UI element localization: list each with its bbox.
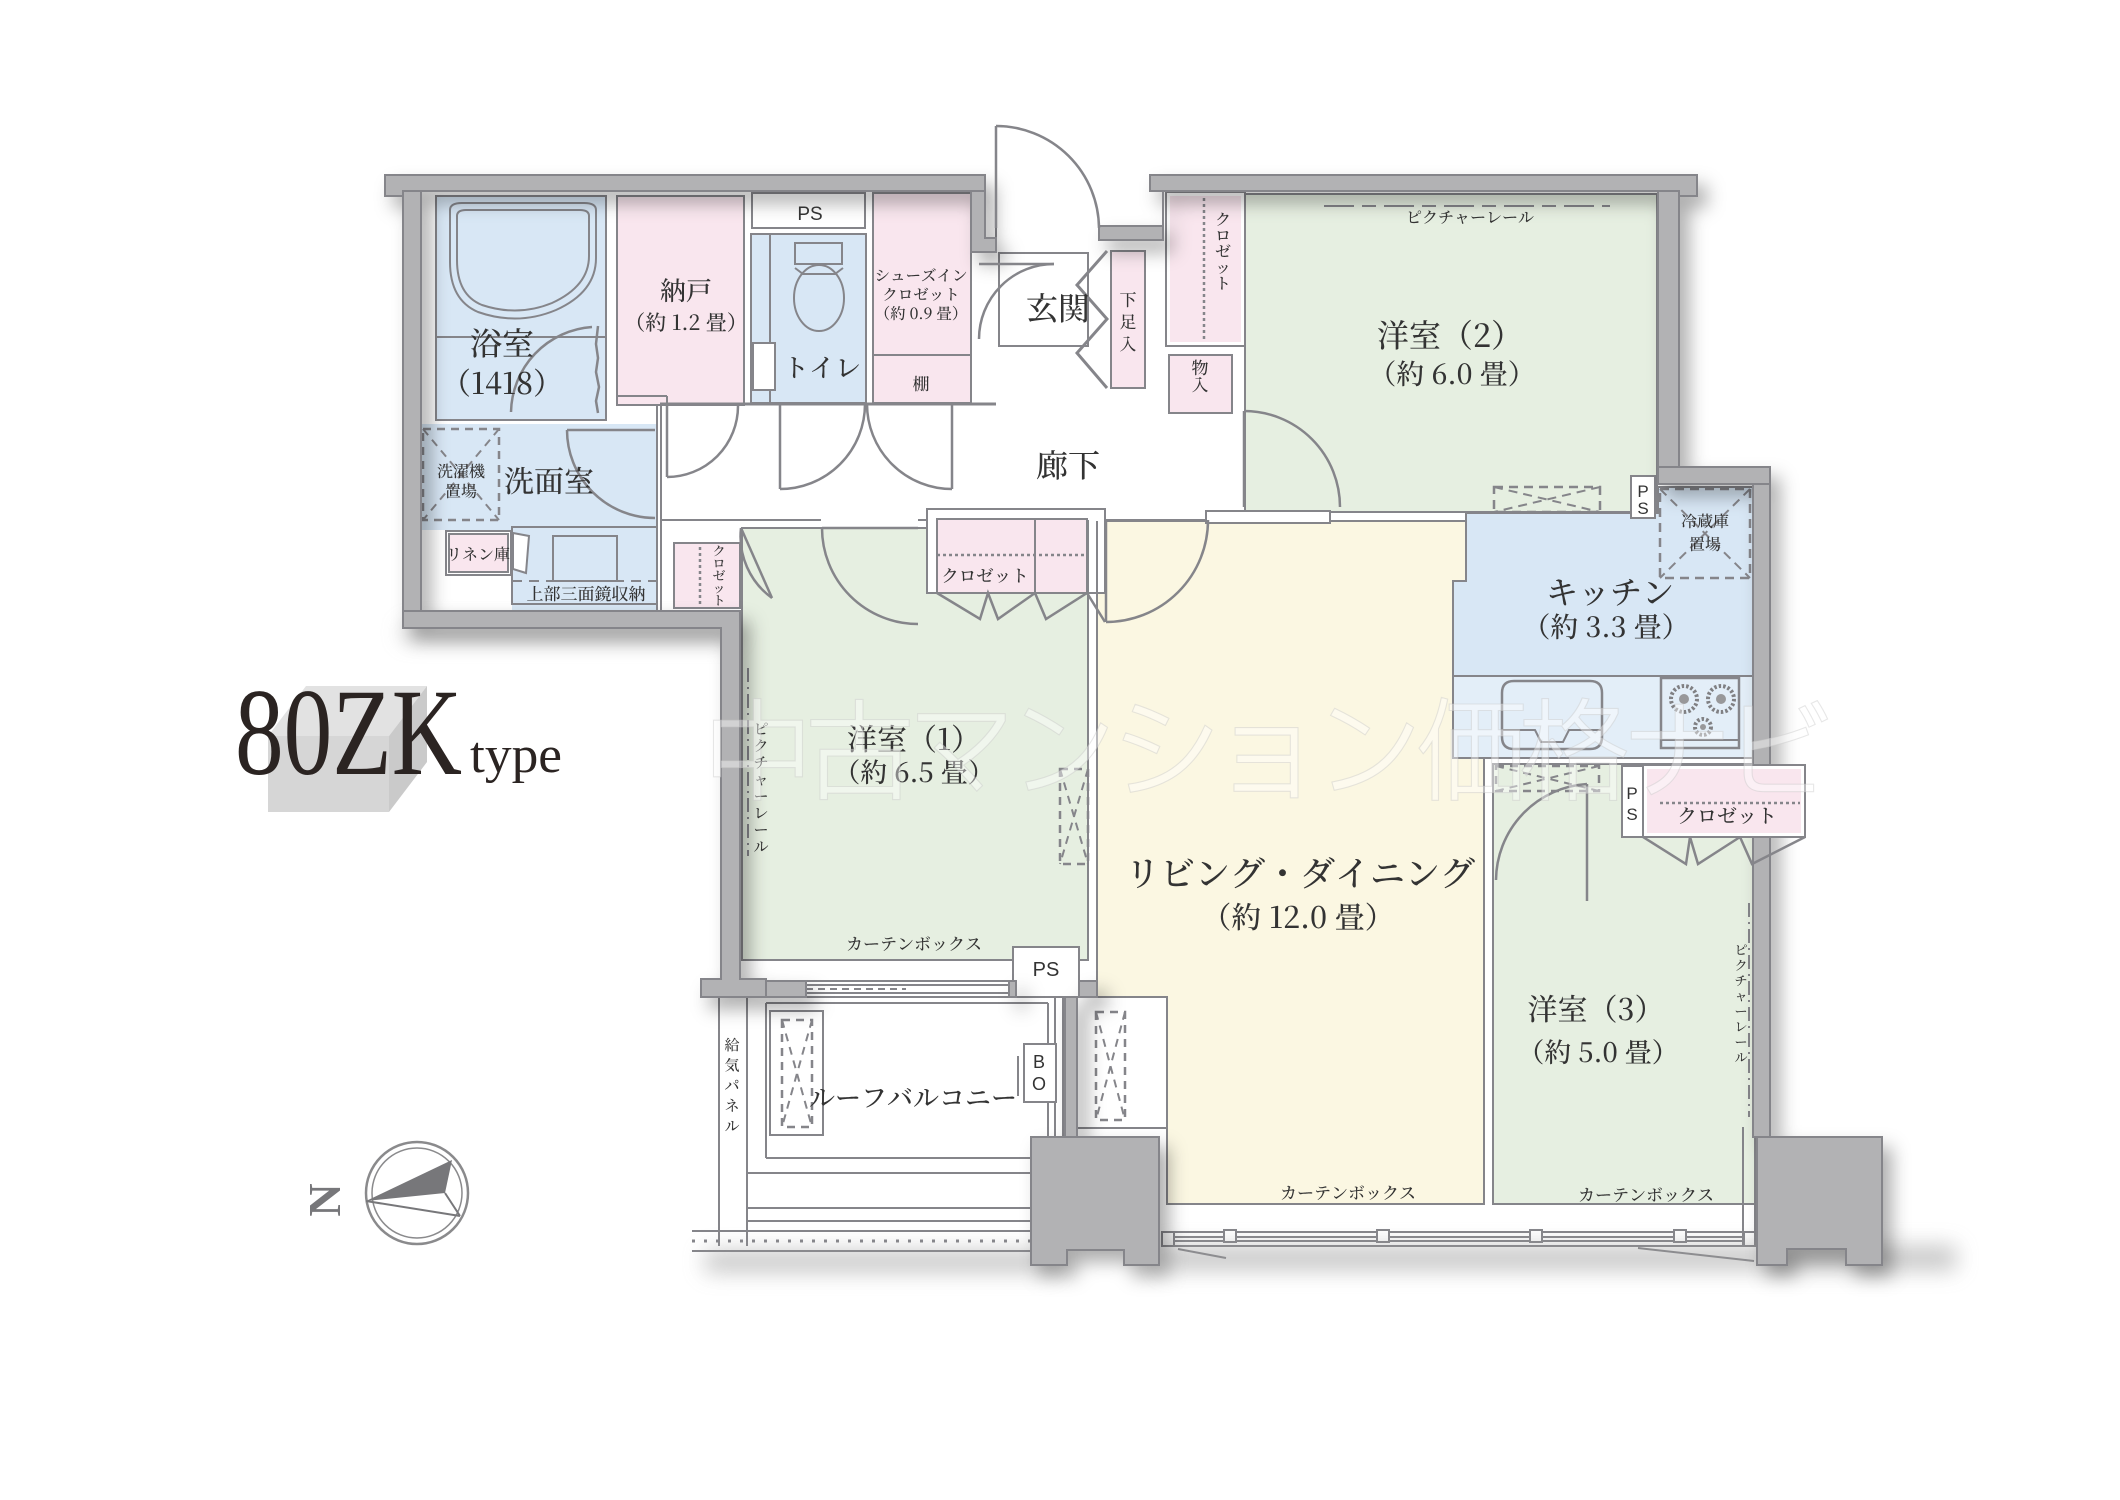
svg-text:S: S (1626, 805, 1637, 824)
svg-text:N: N (299, 1183, 350, 1216)
svg-text:S: S (1637, 499, 1648, 518)
svg-text:O: O (1032, 1074, 1046, 1094)
svg-text:PS: PS (1033, 959, 1060, 981)
svg-text:B: B (1033, 1052, 1045, 1072)
svg-text:P: P (1626, 784, 1637, 803)
svg-text:80ZK: 80ZK (235, 664, 462, 801)
svg-text:type: type (470, 727, 562, 784)
svg-text:PS: PS (797, 204, 822, 225)
